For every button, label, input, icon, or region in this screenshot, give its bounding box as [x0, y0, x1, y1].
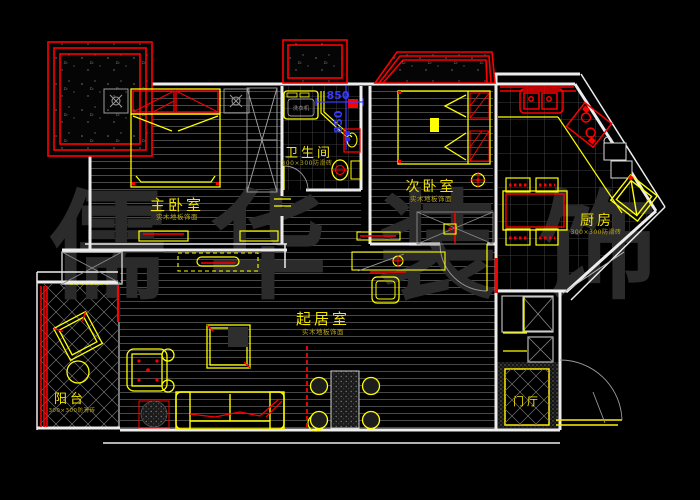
dimension-850-horizontal: 850	[327, 89, 350, 102]
master-bedroom-finish-label: 实木地板饰面	[156, 212, 198, 221]
watermark-char-4: 饰	[539, 177, 657, 316]
window-bathroom-top	[283, 40, 347, 83]
water-heater	[348, 99, 358, 108]
balcony-label: 阳台	[54, 392, 86, 407]
shaft-box-2	[611, 161, 632, 178]
shaft-box-1	[604, 143, 626, 160]
bathroom-finish-label: 300×300防滑砖	[282, 159, 333, 167]
foyer-closet-upper	[502, 296, 553, 332]
watermark-char-2: 华	[209, 177, 327, 316]
bay-window-second-bedroom	[375, 52, 495, 83]
dimension-850-vertical: 850	[332, 110, 345, 133]
kitchen-finish-label: 300×300防滑砖	[571, 228, 622, 236]
floor-plan-drawing: 儒 华 装 饰	[0, 0, 700, 500]
floor-plan-canvas: 儒 华 装 饰	[0, 0, 700, 500]
master-bedroom-label: 主卧室	[150, 196, 204, 214]
second-bedroom-label: 次卧室	[406, 178, 457, 195]
foyer-closet-lower	[503, 333, 553, 362]
balcony-finish-label: 300×300防滑砖	[48, 406, 95, 414]
bay-window-master	[48, 42, 152, 156]
living-room-finish-label: 实木地板饰面	[302, 327, 344, 336]
foyer-label: 门厅	[513, 394, 541, 408]
second-bedroom-finish-label: 实木地板饰面	[410, 194, 452, 203]
entry-door	[556, 360, 622, 425]
washer-label: 洗衣机	[293, 104, 310, 112]
living-room-label: 起居室	[296, 310, 350, 328]
kitchen-label: 厨房	[580, 213, 614, 229]
bathroom-label: 卫生间	[285, 146, 333, 161]
